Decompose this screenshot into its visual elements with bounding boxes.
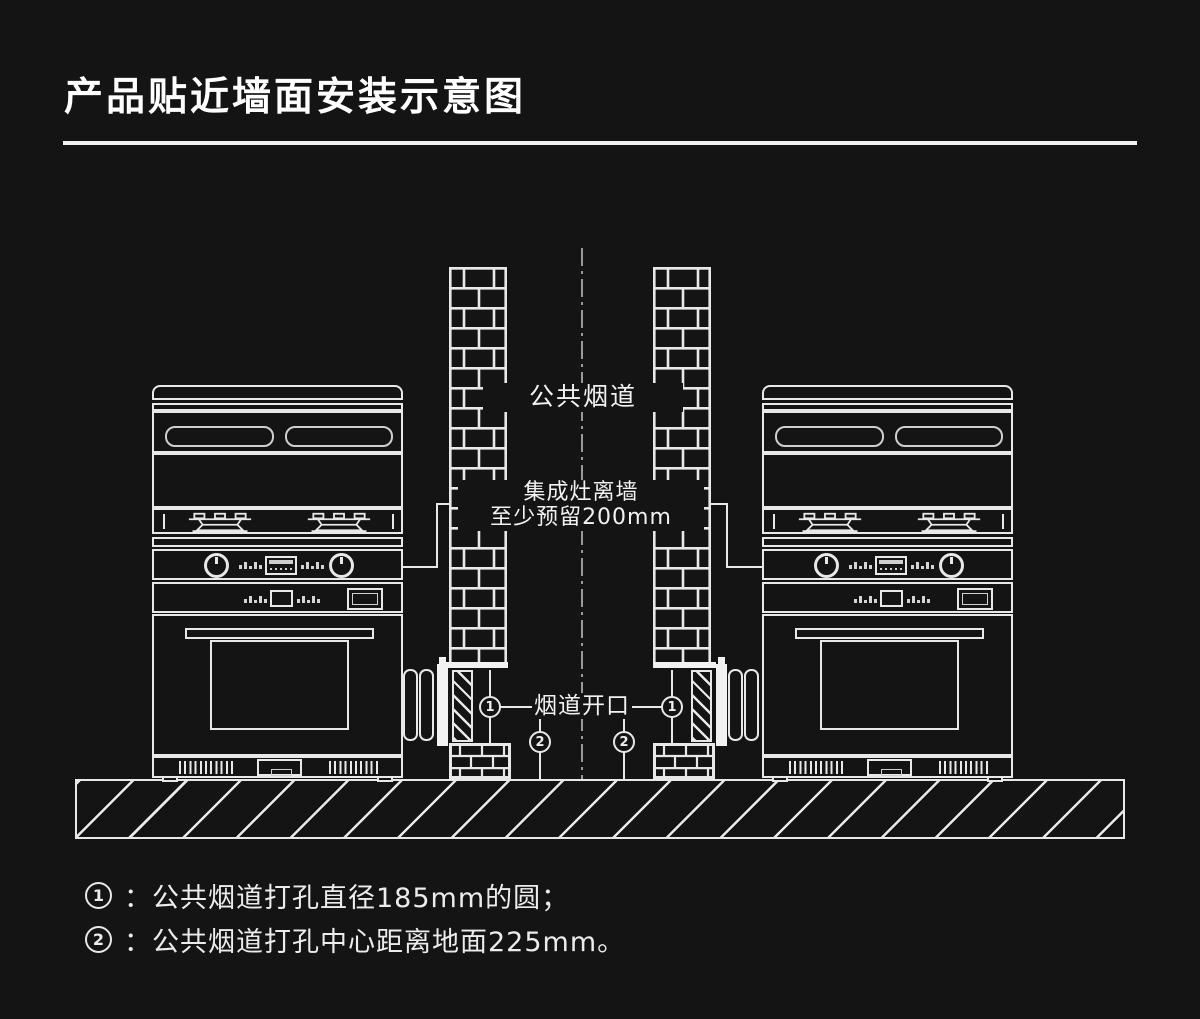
- knob-icon: [204, 553, 229, 578]
- secondary-control-panel: [762, 582, 1013, 613]
- oven-window: [210, 640, 349, 730]
- cooktop-trim-strip: [152, 537, 403, 547]
- marker-1-left: 1: [479, 696, 501, 718]
- vent-slot: [285, 426, 393, 447]
- clearance-dim-line-left: [436, 503, 438, 568]
- clearance-dim-line-right: [726, 503, 728, 568]
- clearance-label: 集成灶离墙 至少预留200mm: [458, 480, 704, 531]
- note-2-marker: 2: [85, 926, 112, 953]
- duct-flange-knob-right: [718, 657, 725, 664]
- wall-section-right: [691, 670, 712, 742]
- vent-grille-icon: [789, 761, 844, 774]
- display-icon: [265, 556, 297, 575]
- page: 产品贴近墙面安装示意图: [0, 0, 1200, 1019]
- panel-button: [347, 588, 383, 610]
- marker-2-left: 2: [529, 731, 551, 753]
- cooktop-edge-mark: [773, 514, 775, 529]
- integrated-stove-left: [152, 385, 403, 783]
- indicator-icons: [301, 561, 324, 569]
- display-icon: [875, 556, 907, 575]
- hood-top-panel: [152, 385, 403, 400]
- wall-section-left: [452, 670, 473, 742]
- knob-icon: [939, 553, 964, 578]
- note-1-marker: 1: [85, 882, 112, 909]
- marker-2-right: 2: [613, 731, 635, 753]
- duct-flange-left: [437, 664, 448, 746]
- clearance-dim-stub-left: [399, 566, 438, 568]
- hood-top-panel: [762, 385, 1013, 400]
- burner-icon: [912, 511, 986, 533]
- oven-door: [762, 614, 1013, 756]
- duct-flange-knob-left: [439, 657, 446, 664]
- opening-link-right: [630, 706, 662, 708]
- clearance-label-line1: 集成灶离墙: [458, 480, 704, 505]
- clearance-dim-stub-right: [726, 566, 765, 568]
- brick-flue-wall-right: [653, 267, 711, 668]
- base-drawer: [257, 759, 302, 776]
- brick-base-left: [449, 743, 511, 779]
- cooktop-edge-mark: [163, 514, 165, 529]
- cooktop-edge-mark: [392, 514, 394, 529]
- installation-diagram: 1 1 2 2 公共烟道 集成灶离墙 至少预留200mm 烟道开口: [0, 0, 1200, 1019]
- brick-flue-wall-left: [449, 267, 507, 668]
- vent-slot: [895, 426, 1003, 447]
- exhaust-duct-right: [728, 669, 743, 741]
- hood-vent-panel: [762, 411, 1013, 453]
- flue-opening-label: 烟道开口: [532, 693, 632, 719]
- secondary-control-panel: [152, 582, 403, 613]
- note-1-text: ：公共烟道打孔直径185mm的圆；: [124, 876, 569, 915]
- base-panel: [762, 756, 1013, 778]
- note-2-text: ：公共烟道打孔中心距离地面225mm。: [124, 920, 625, 959]
- burner-icon: [793, 511, 867, 533]
- oven-handle: [185, 628, 374, 639]
- vent-slot: [165, 426, 274, 447]
- brick-base-right: [653, 743, 715, 779]
- vent-grille-icon: [939, 761, 990, 774]
- burner-icon: [183, 511, 257, 533]
- hood-trim-band: [762, 403, 1013, 411]
- exhaust-duct-left: [419, 669, 434, 741]
- opening-link-left: [500, 706, 533, 708]
- base-drawer: [867, 759, 912, 776]
- stove-foot: [987, 776, 1003, 782]
- hood-trim-band: [152, 403, 403, 411]
- wall-cap-right: [654, 662, 716, 668]
- stove-foot: [162, 776, 178, 782]
- flue-label: 公共烟道: [483, 383, 683, 412]
- indicator-icons: [297, 595, 320, 603]
- display-icon: [270, 590, 293, 607]
- vent-grille-icon: [329, 761, 380, 774]
- marker-1-right: 1: [661, 696, 683, 718]
- note-2: 2 ：公共烟道打孔中心距离地面225mm。: [85, 920, 625, 959]
- stove-foot: [377, 776, 393, 782]
- oven-handle: [795, 628, 984, 639]
- floor-hatch: [75, 779, 1125, 839]
- indicator-icons: [854, 595, 877, 603]
- oven-window: [820, 640, 959, 730]
- exhaust-duct-left: [403, 669, 418, 741]
- duct-flange-right: [716, 664, 727, 746]
- indicator-icons: [911, 561, 934, 569]
- vent-grille-icon: [179, 761, 234, 774]
- indicator-icons: [849, 561, 872, 569]
- vent-slot: [775, 426, 884, 447]
- control-panel: [762, 549, 1013, 580]
- indicator-icons: [239, 561, 262, 569]
- integrated-stove-right: [762, 385, 1013, 783]
- display-icon: [880, 590, 903, 607]
- knob-icon: [814, 553, 839, 578]
- base-panel: [152, 756, 403, 778]
- indicator-icons: [907, 595, 930, 603]
- hood-body: [152, 453, 403, 508]
- burner-icon: [302, 511, 376, 533]
- exhaust-duct-right: [744, 669, 759, 741]
- cooktop-panel: [762, 508, 1013, 534]
- cooktop-trim-strip: [762, 537, 1013, 547]
- stove-foot: [772, 776, 788, 782]
- cooktop-edge-mark: [1002, 514, 1004, 529]
- control-panel: [152, 549, 403, 580]
- wall-cap-left: [446, 662, 508, 668]
- panel-button: [957, 588, 993, 610]
- hood-vent-panel: [152, 411, 403, 453]
- hood-body: [762, 453, 1013, 508]
- note-1: 1 ：公共烟道打孔直径185mm的圆；: [85, 876, 569, 915]
- cooktop-panel: [152, 508, 403, 534]
- indicator-icons: [244, 595, 267, 603]
- clearance-label-line2: 至少预留200mm: [458, 505, 704, 530]
- oven-door: [152, 614, 403, 756]
- knob-icon: [329, 553, 354, 578]
